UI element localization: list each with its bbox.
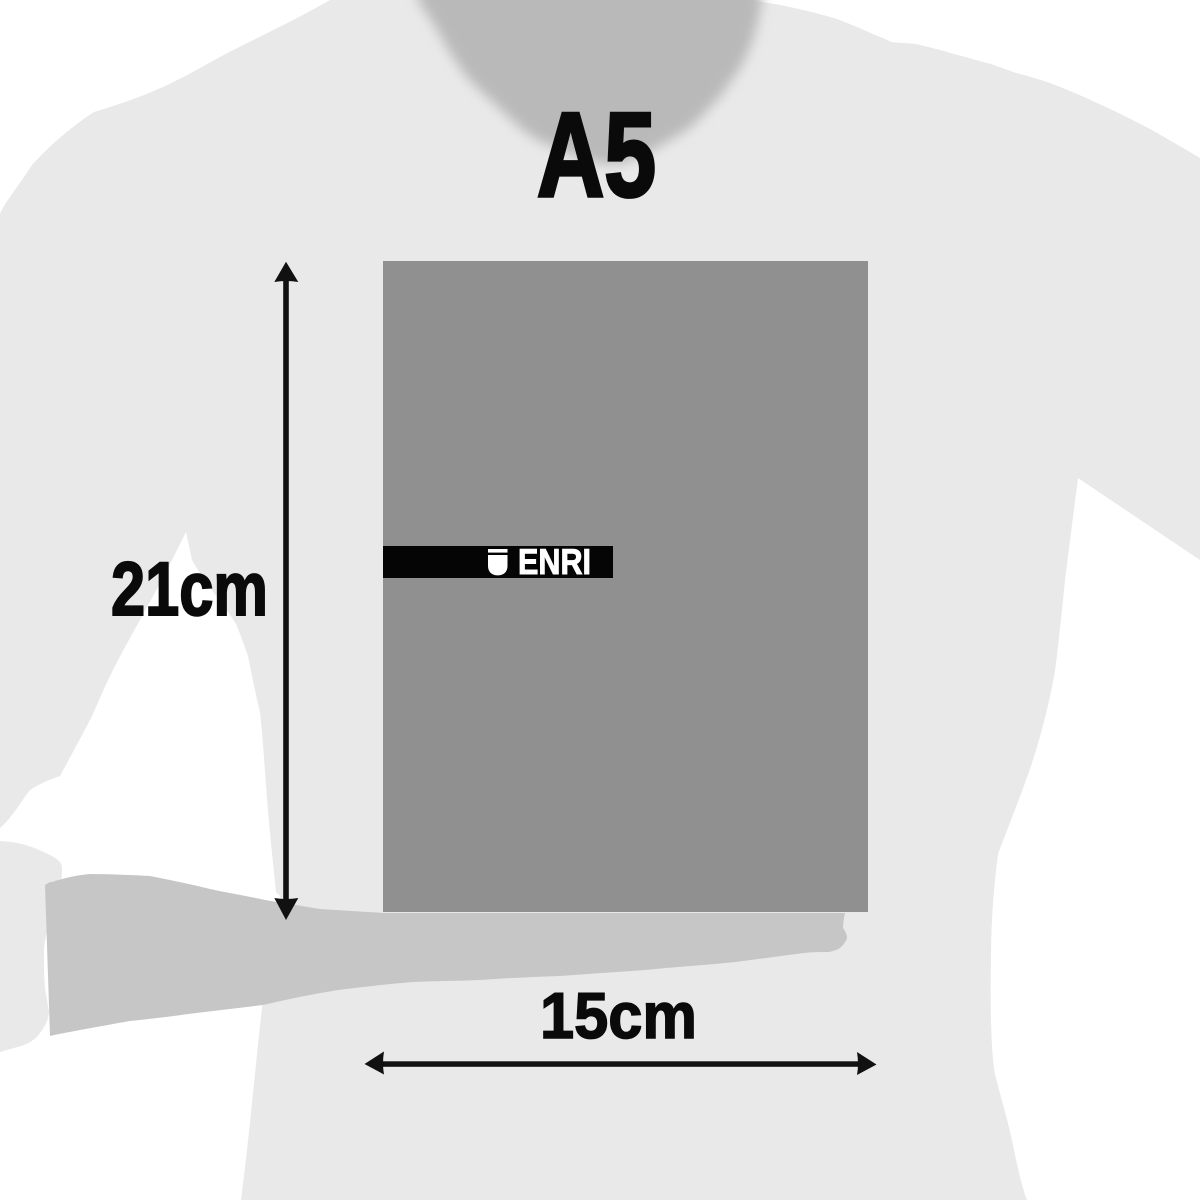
svg-text:A5: A5 [537,88,656,222]
svg-text:15cm: 15cm [540,979,697,1052]
svg-text:21cm: 21cm [111,547,268,632]
svg-text:ENRI: ENRI [518,541,591,582]
